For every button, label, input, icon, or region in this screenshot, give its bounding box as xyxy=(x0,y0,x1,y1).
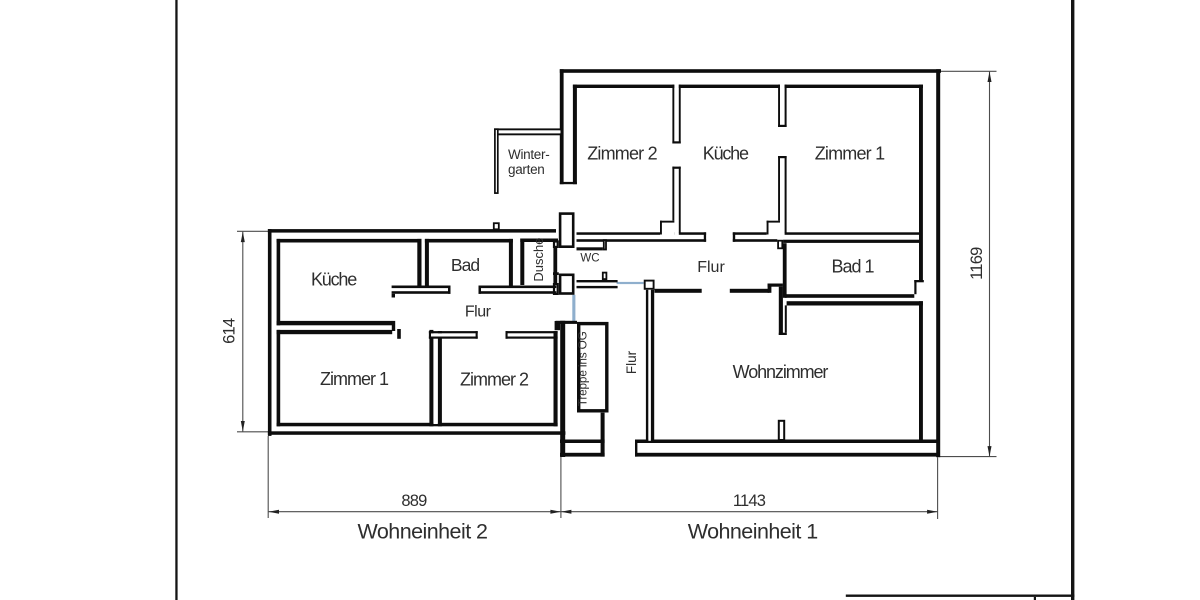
svg-text:Zimmer 1: Zimmer 1 xyxy=(320,369,389,389)
svg-text:Treppe ins OG: Treppe ins OG xyxy=(576,331,590,406)
svg-text:Küche: Küche xyxy=(311,269,357,289)
svg-text:Wohneinheit 1: Wohneinheit 1 xyxy=(688,520,818,544)
svg-text:Wohneinheit 2: Wohneinheit 2 xyxy=(358,519,488,543)
svg-text:Zimmer 1: Zimmer 1 xyxy=(815,144,885,164)
svg-text:889: 889 xyxy=(401,492,427,510)
svg-text:Flur: Flur xyxy=(465,304,492,321)
svg-text:Küche: Küche xyxy=(703,144,749,164)
svg-text:Bad 1: Bad 1 xyxy=(831,257,874,277)
svg-text:Bad: Bad xyxy=(451,255,479,275)
svg-text:Flur: Flur xyxy=(624,350,639,374)
svg-text:1143: 1143 xyxy=(733,492,766,510)
svg-text:Zimmer 2: Zimmer 2 xyxy=(460,370,529,390)
svg-text:Zimmer 2: Zimmer 2 xyxy=(587,144,657,164)
svg-text:Flur: Flur xyxy=(697,259,725,276)
svg-text:WC: WC xyxy=(580,252,599,264)
svg-text:614: 614 xyxy=(220,318,238,344)
svg-text:Wohnzimmer: Wohnzimmer xyxy=(733,362,829,382)
svg-text:1169: 1169 xyxy=(968,247,986,280)
svg-text:Dusche: Dusche xyxy=(531,238,546,282)
svg-text:Winter-: Winter- xyxy=(508,147,549,162)
svg-text:garten: garten xyxy=(508,162,544,177)
